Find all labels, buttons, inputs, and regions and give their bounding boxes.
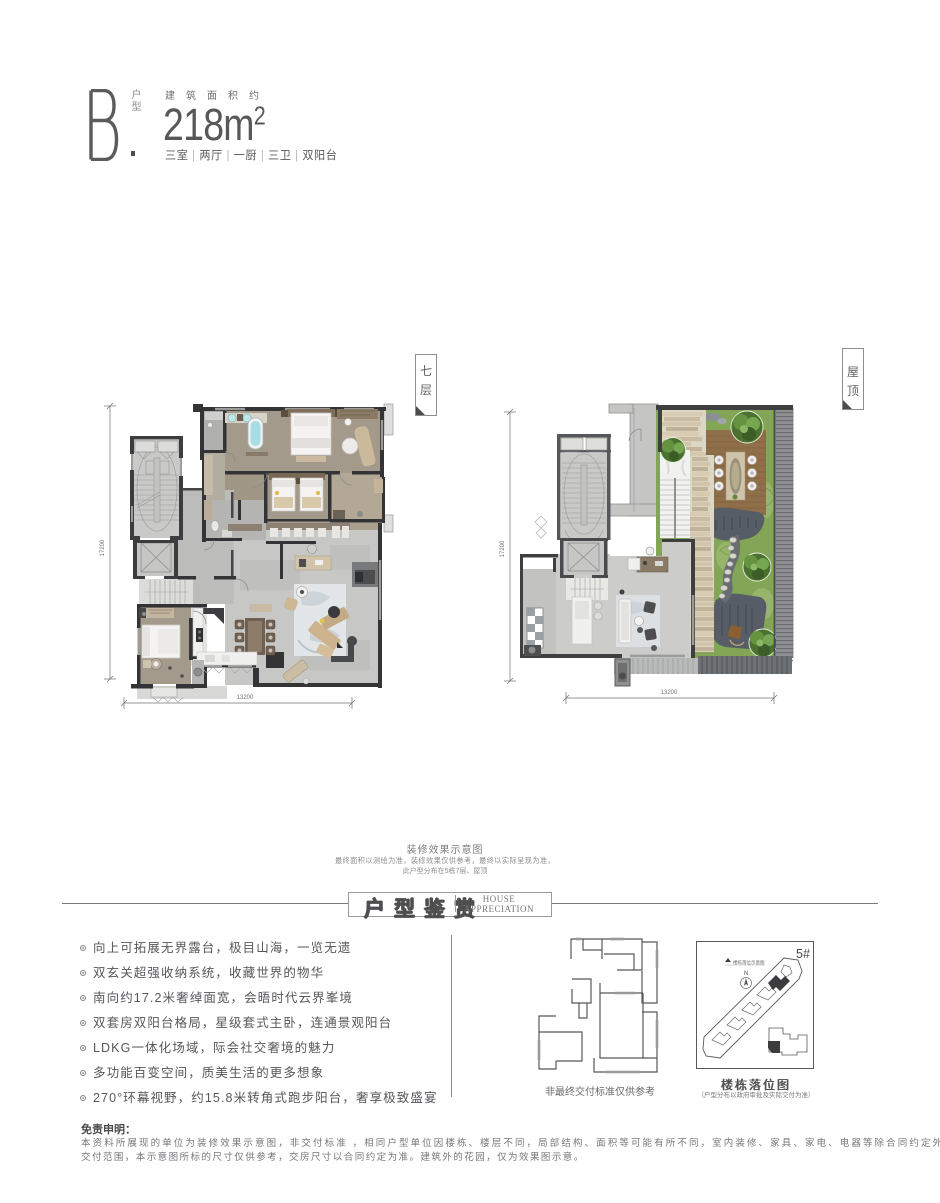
svg-text:N: N <box>744 971 748 977</box>
svg-text:13200: 13200 <box>661 690 678 696</box>
svg-text:17200: 17200 <box>500 540 506 557</box>
svg-text:17200: 17200 <box>100 539 106 556</box>
svg-text:5#: 5# <box>796 947 810 961</box>
svg-text:层: 层 <box>420 383 432 397</box>
svg-text:七: 七 <box>420 364 432 378</box>
svg-text:屋: 屋 <box>847 365 859 379</box>
svg-text:13200: 13200 <box>237 695 254 701</box>
svg-text:顶: 顶 <box>847 384 859 398</box>
